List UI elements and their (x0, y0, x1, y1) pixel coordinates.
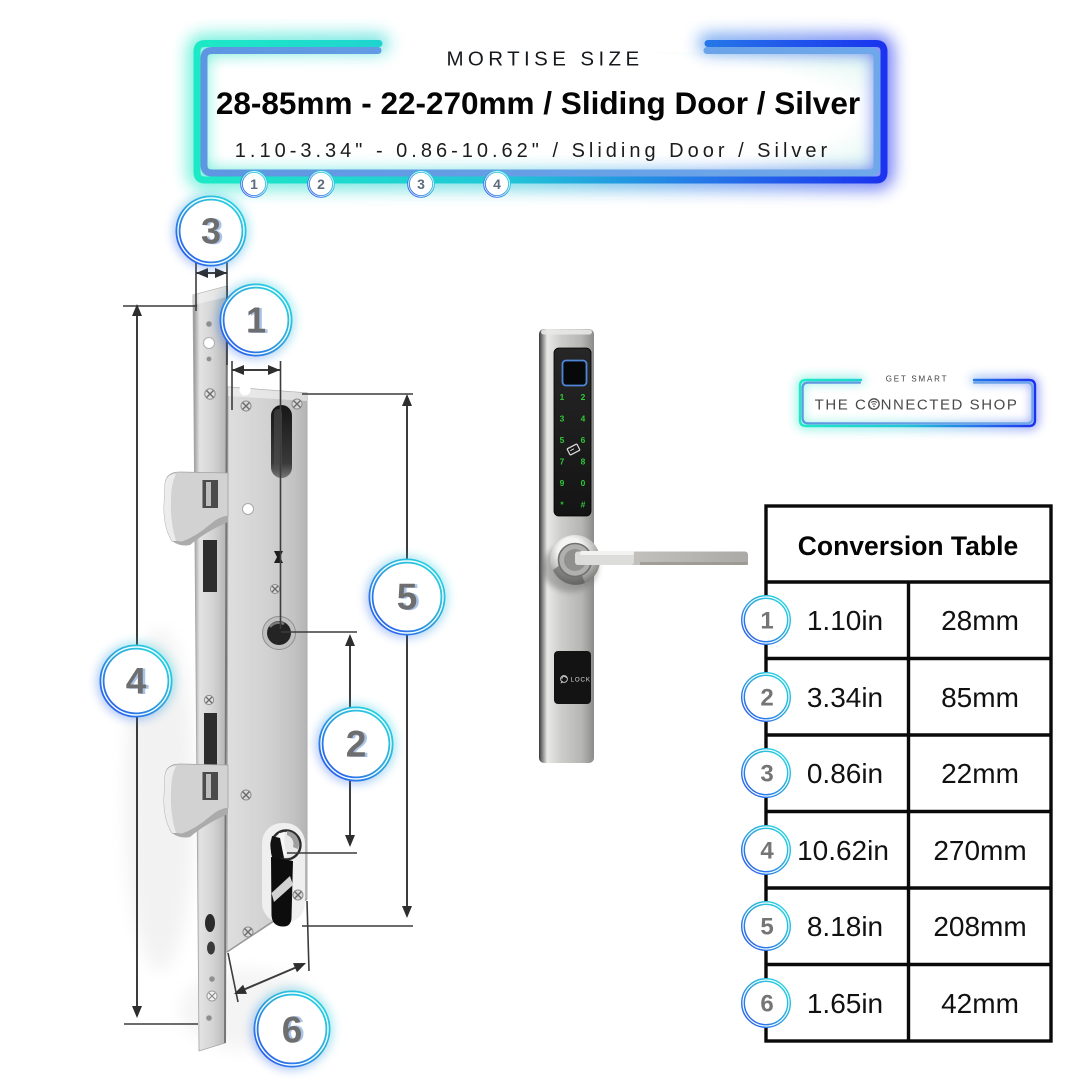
svg-text:1: 1 (560, 392, 565, 402)
svg-text:28mm: 28mm (941, 605, 1019, 636)
svg-text:4: 4 (581, 414, 586, 424)
svg-text:3.34in: 3.34in (807, 682, 883, 713)
svg-text:22mm: 22mm (941, 758, 1019, 789)
svg-text:4: 4 (760, 838, 774, 865)
svg-text:#: # (581, 500, 586, 510)
svg-text:5: 5 (397, 577, 418, 618)
svg-text:5: 5 (560, 435, 565, 445)
svg-text:2: 2 (346, 724, 367, 765)
svg-text:208mm: 208mm (933, 911, 1026, 942)
svg-text:10.62in: 10.62in (797, 835, 889, 866)
svg-text:1: 1 (760, 608, 773, 635)
svg-text:28-85mm - 22-270mm / Sliding D: 28-85mm - 22-270mm / Sliding Door / Silv… (216, 85, 860, 121)
svg-text:3: 3 (760, 761, 773, 788)
svg-text:THE CONNECTED SHOP: THE CONNECTED SHOP (815, 397, 1019, 414)
svg-text:0: 0 (581, 478, 586, 488)
svg-text:Conversion Table: Conversion Table (798, 531, 1018, 561)
svg-text:1: 1 (246, 300, 266, 341)
svg-text:1.10-3.34" - 0.86-10.62" / Sli: 1.10-3.34" - 0.86-10.62" / Sliding Door … (235, 140, 831, 162)
svg-text:2: 2 (760, 685, 773, 712)
svg-text:5: 5 (760, 914, 773, 941)
svg-text:GET SMART: GET SMART (886, 375, 949, 384)
svg-text:9: 9 (560, 478, 565, 488)
svg-text:1.65in: 1.65in (807, 988, 883, 1019)
svg-text:2: 2 (317, 176, 325, 192)
svg-text:270mm: 270mm (933, 835, 1026, 866)
svg-text:3: 3 (560, 414, 565, 424)
svg-text:85mm: 85mm (941, 682, 1019, 713)
svg-text:3: 3 (201, 211, 221, 252)
svg-text:4: 4 (493, 176, 501, 192)
svg-text:1.10in: 1.10in (807, 605, 883, 636)
svg-text:6: 6 (282, 1010, 303, 1051)
svg-text:0.86in: 0.86in (807, 758, 883, 789)
svg-text:6: 6 (760, 991, 773, 1018)
svg-text:LOCK: LOCK (571, 677, 591, 684)
svg-text:1: 1 (250, 176, 258, 192)
svg-text:8: 8 (581, 457, 586, 467)
svg-text:6: 6 (581, 435, 586, 445)
svg-text:3: 3 (417, 176, 425, 192)
svg-text:7: 7 (560, 457, 565, 467)
svg-text:2: 2 (581, 392, 586, 402)
svg-text:8.18in: 8.18in (807, 911, 883, 942)
svg-text:4: 4 (126, 661, 147, 702)
svg-text:42mm: 42mm (941, 988, 1019, 1019)
svg-text:MORTISE SIZE: MORTISE SIZE (446, 48, 643, 71)
